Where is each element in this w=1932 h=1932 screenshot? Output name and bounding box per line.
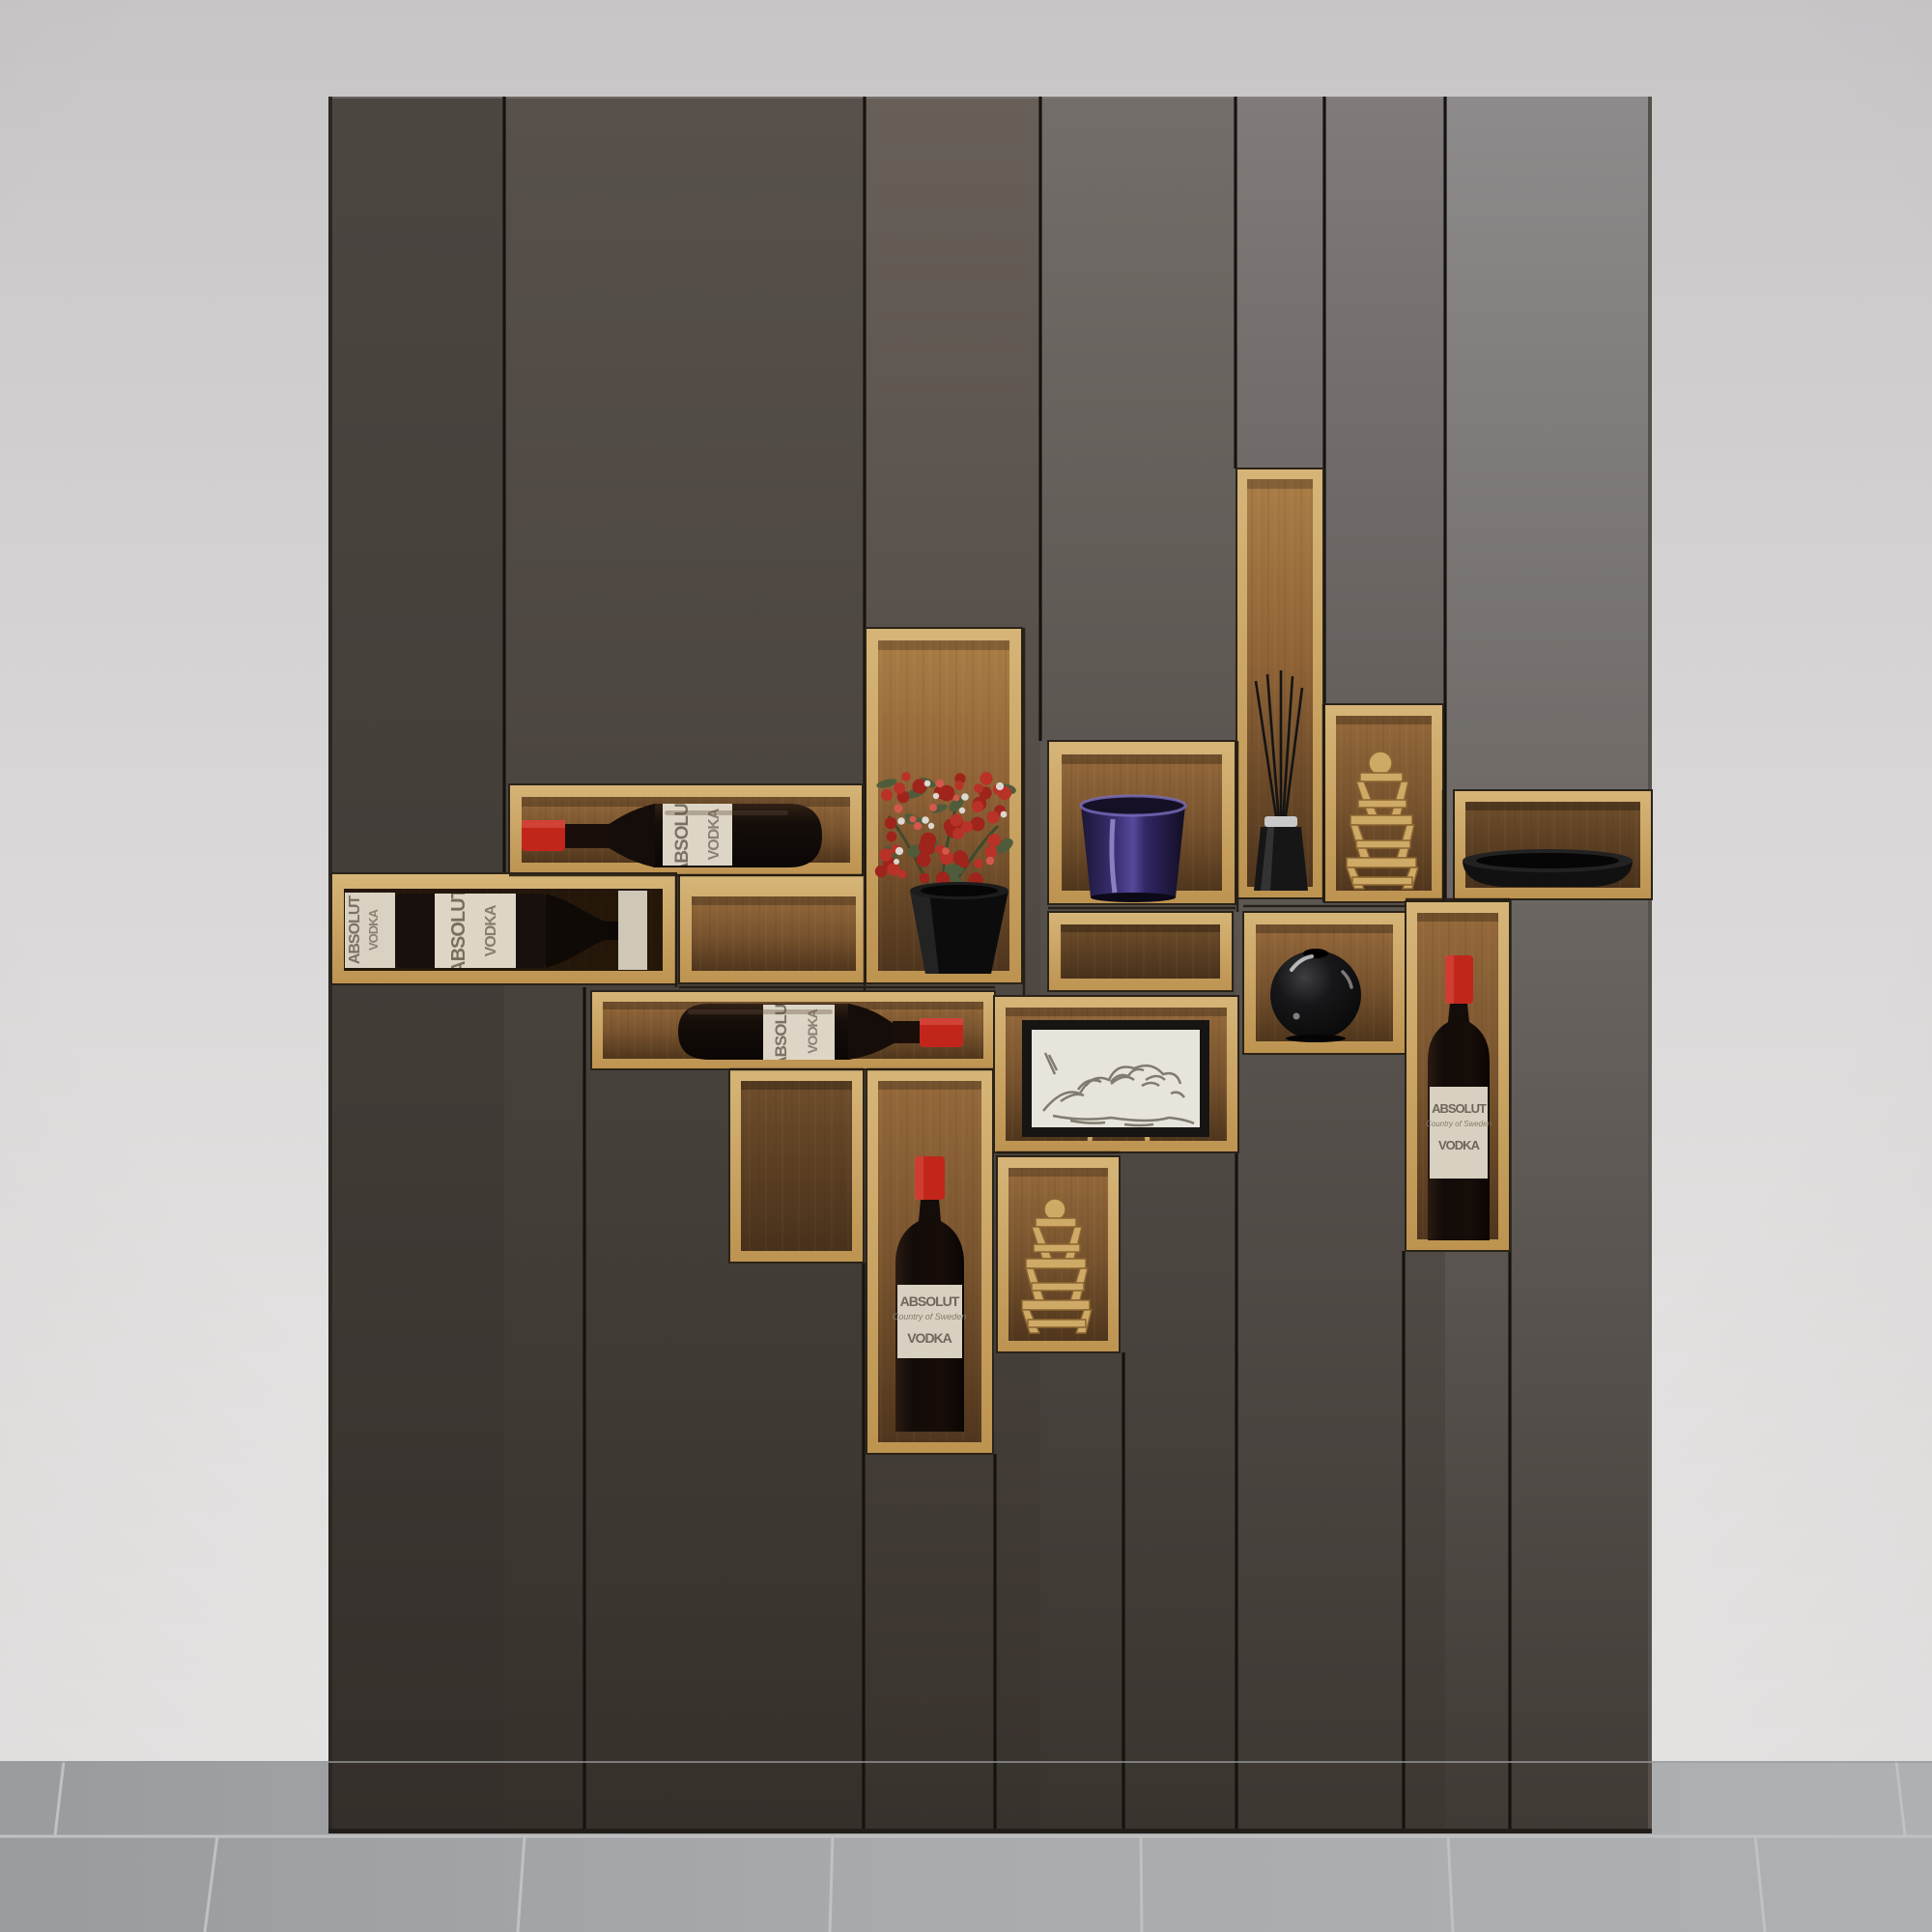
svg-text:ABSOLUT: ABSOLUT [347,895,363,965]
svg-text:VODKA: VODKA [805,1009,820,1053]
svg-text:VODKA: VODKA [1438,1138,1481,1152]
svg-text:Country of Sweden: Country of Sweden [1426,1120,1492,1128]
svg-text:ABSOLUT: ABSOLUT [448,887,469,974]
svg-text:ABSOLUT: ABSOLUT [672,792,693,875]
svg-text:ABSOLUT: ABSOLUT [772,994,790,1068]
svg-text:ABSOLUT: ABSOLUT [900,1293,960,1309]
svg-text:VODKA: VODKA [366,908,381,951]
svg-text:VODKA: VODKA [706,808,723,860]
svg-text:ABSOLUT: ABSOLUT [1432,1101,1487,1116]
svg-text:VODKA: VODKA [483,904,499,956]
svg-text:VODKA: VODKA [907,1330,952,1346]
svg-text:Country of Sweden: Country of Sweden [893,1312,967,1321]
